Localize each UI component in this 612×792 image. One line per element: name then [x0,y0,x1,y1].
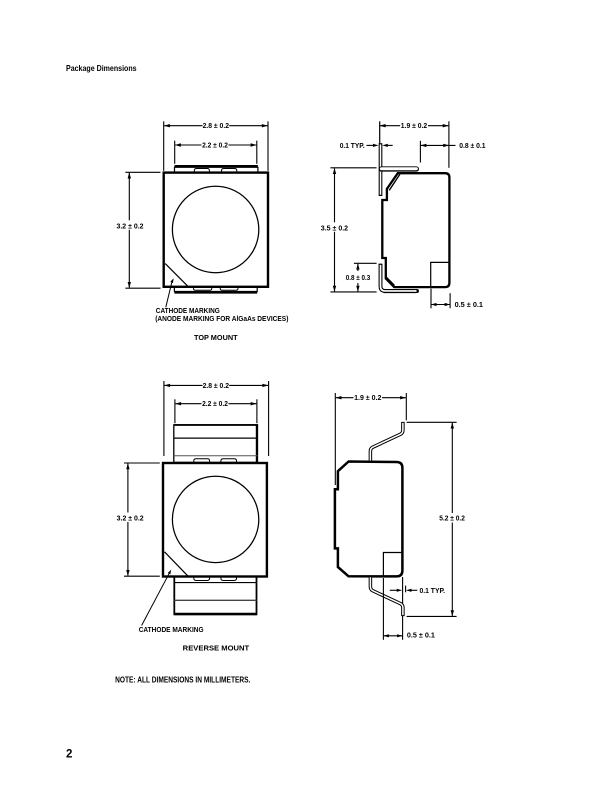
svg-text:0.8 ± 0.1: 0.8 ± 0.1 [459,143,486,150]
svg-text:0.8 ± 0.3: 0.8 ± 0.3 [346,275,371,282]
svg-text:1.9 ± 0.2: 1.9 ± 0.2 [401,123,428,130]
svg-text:3.5 ± 0.2: 3.5 ± 0.2 [321,225,348,232]
svg-text:3.2 ± 0.2: 3.2 ± 0.2 [117,223,144,230]
svg-text:Package Dimensions: Package Dimensions [66,63,137,73]
svg-text:NOTE: ALL DIMENSIONS IN MILLIM: NOTE: ALL DIMENSIONS IN MILLIMETERS. [115,675,250,684]
svg-text:0.5 ± 0.1: 0.5 ± 0.1 [407,633,435,640]
svg-text:0.5 ± 0.1: 0.5 ± 0.1 [455,302,484,309]
svg-text:5.2 ± 0.2: 5.2 ± 0.2 [439,516,465,523]
svg-text:0.1 TYP.: 0.1 TYP. [420,588,446,595]
svg-text:3.2 ± 0.2: 3.2 ± 0.2 [117,516,144,523]
svg-text:CATHODE MARKING: CATHODE MARKING [139,625,204,634]
svg-text:2.2 ± 0.2: 2.2 ± 0.2 [202,142,228,149]
svg-text:1.9 ± 0.2: 1.9 ± 0.2 [354,395,381,402]
svg-text:2.8 ± 0.2: 2.8 ± 0.2 [203,383,230,390]
svg-text:2.8 ± 0.2: 2.8 ± 0.2 [203,123,230,130]
svg-text:0.1 TYP.: 0.1 TYP. [340,143,365,150]
svg-text:TOP MOUNT: TOP MOUNT [194,333,238,342]
svg-text:2: 2 [66,748,72,760]
svg-text:REVERSE MOUNT: REVERSE MOUNT [183,643,250,652]
svg-text:2.2 ± 0.2: 2.2 ± 0.2 [202,401,228,408]
svg-text:(ANODE MARKING FOR AlGaAs DEVI: (ANODE MARKING FOR AlGaAs DEVICES) [155,314,289,323]
